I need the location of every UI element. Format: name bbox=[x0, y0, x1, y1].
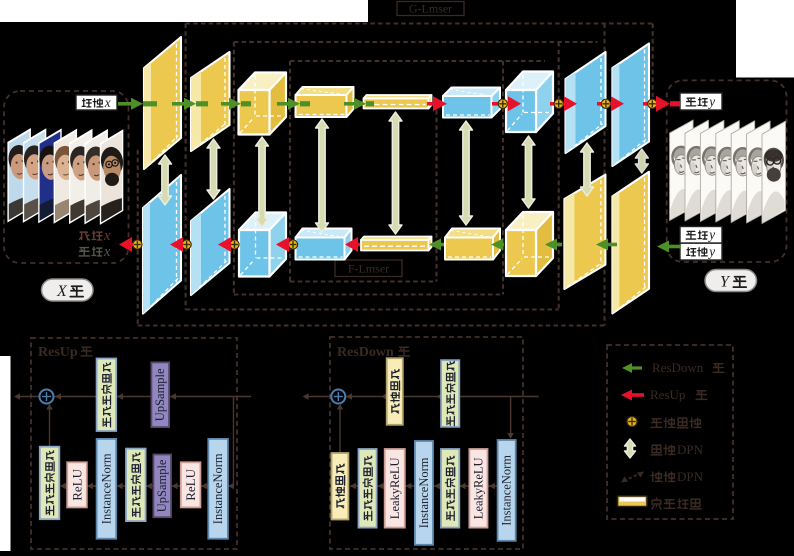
svg-text:InstanceNorm: InstanceNorm bbox=[500, 455, 514, 526]
svg-text:F-Lmser: F-Lmser bbox=[348, 262, 389, 276]
svg-text:y: y bbox=[707, 94, 715, 109]
svg-text:y: y bbox=[707, 227, 715, 242]
svg-text:x: x bbox=[104, 95, 111, 110]
svg-text:UpSample: UpSample bbox=[155, 459, 169, 512]
svg-text:ResDown: ResDown bbox=[337, 345, 394, 360]
svg-text:LeakyReLU: LeakyReLU bbox=[388, 457, 402, 519]
svg-text:ReLU: ReLU bbox=[183, 468, 198, 500]
svg-text:y: y bbox=[707, 244, 715, 259]
svg-text:X: X bbox=[56, 283, 68, 300]
svg-text:InstanceNorm: InstanceNorm bbox=[417, 457, 431, 528]
svg-text:InstanceNorm: InstanceNorm bbox=[99, 453, 113, 524]
svg-text:x: x bbox=[103, 244, 111, 260]
svg-text:G-Lmser: G-Lmser bbox=[409, 2, 452, 16]
svg-text:ReLU: ReLU bbox=[70, 468, 85, 500]
svg-text:ResUp: ResUp bbox=[38, 345, 78, 360]
svg-text:InstanceNorm: InstanceNorm bbox=[211, 453, 225, 524]
svg-text:x: x bbox=[103, 228, 111, 244]
svg-text:LeakyReLU: LeakyReLU bbox=[471, 457, 485, 519]
svg-text:DPN: DPN bbox=[677, 469, 704, 484]
svg-text:DPN: DPN bbox=[677, 442, 704, 457]
svg-text:UpSample: UpSample bbox=[153, 368, 167, 421]
svg-text:ResUp: ResUp bbox=[650, 387, 685, 402]
svg-text:ResDown: ResDown bbox=[652, 360, 704, 375]
